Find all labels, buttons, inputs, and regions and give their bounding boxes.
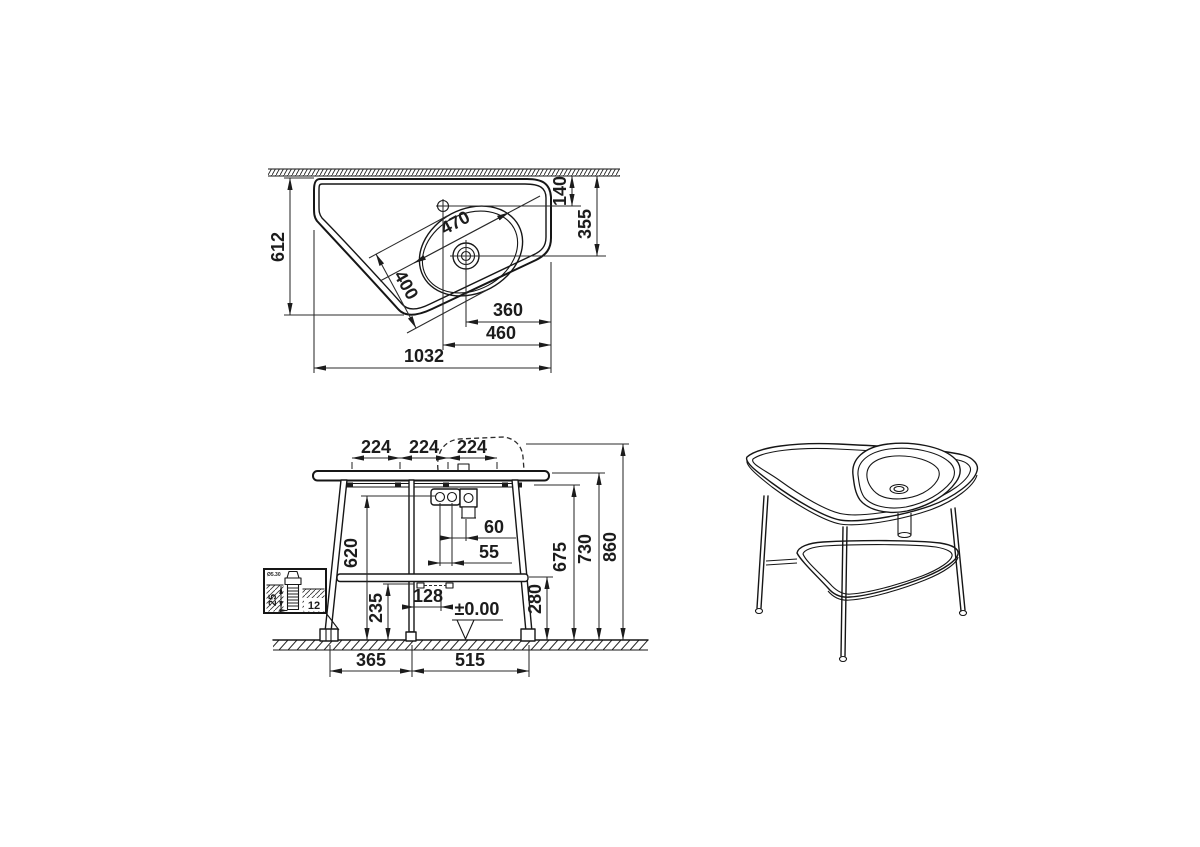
dim-360: 360 (493, 300, 523, 320)
dim-515: 515 (455, 650, 485, 670)
shelf-front (337, 574, 528, 582)
level-marker: ±0.00 (452, 599, 503, 639)
dim-60: 60 (484, 517, 504, 537)
top-view: 612 140 355 470 400 360 460 1032 (268, 169, 620, 373)
feet-front (320, 629, 535, 641)
dim-25: 25 (267, 594, 279, 606)
dim-224-b: 224 (409, 437, 439, 457)
dim-355: 355 (575, 209, 595, 239)
dim-460: 460 (486, 323, 516, 343)
drawing-page: 612 140 355 470 400 360 460 1032 (0, 0, 1200, 847)
dim-280: 280 (525, 584, 545, 614)
iso-view (747, 443, 978, 661)
dim-365: 365 (356, 650, 386, 670)
dim-235: 235 (366, 593, 386, 623)
dim-128: 128 (413, 586, 443, 606)
screw-size-label: Ø5.30 (267, 572, 281, 578)
dim-1032: 1032 (404, 346, 444, 366)
wall-section (268, 169, 620, 176)
technical-drawing: 612 140 355 470 400 360 460 1032 (0, 0, 1200, 847)
drain-flange (458, 464, 469, 471)
frame-rail (345, 483, 522, 488)
dim-620: 620 (341, 538, 361, 568)
dim-12: 12 (308, 600, 320, 612)
countertop-front (313, 471, 549, 481)
dim-224-a: 224 (361, 437, 391, 457)
dim-860: 860 (600, 532, 620, 562)
dim-730: 730 (575, 534, 595, 564)
trap-fittings (431, 489, 477, 518)
dim-224-c: 224 (457, 437, 487, 457)
dim-400: 400 (390, 267, 422, 303)
level-text: ±0.00 (455, 599, 500, 619)
iso-shelf (797, 541, 958, 601)
drain-symbol (450, 240, 482, 272)
iso-stretcher (766, 559, 797, 565)
screw-anchor (285, 572, 301, 610)
countertop-plan-outline (314, 179, 551, 315)
dim-55: 55 (479, 542, 499, 562)
iso-bowl (853, 443, 960, 512)
dim-140: 140 (550, 176, 570, 206)
dim-612: 612 (268, 232, 288, 262)
front-view: 224 224 224 620 235 60 55 (264, 437, 648, 677)
faucet-hole-symbol (436, 199, 450, 213)
dim-675: 675 (550, 542, 570, 572)
